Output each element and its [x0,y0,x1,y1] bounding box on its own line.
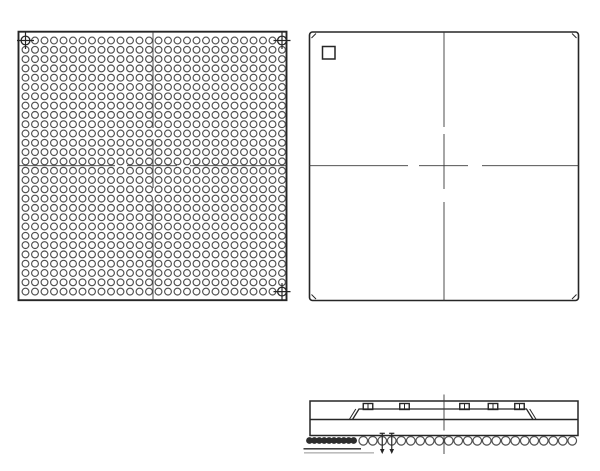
solder-ball [32,149,39,156]
solder-ball [260,260,267,267]
solder-ball [269,186,276,193]
solder-ball [241,37,248,44]
solder-ball [60,214,67,221]
solder-ball [155,112,162,119]
solder-ball [60,232,67,239]
solder-ball [51,260,58,267]
solder-ball [98,232,105,239]
solder-ball [241,288,248,295]
solder-ball [146,195,153,202]
solder-ball [174,130,181,137]
solder-ball [117,102,124,109]
solder-ball [127,37,134,44]
solder-ball [32,130,39,137]
solder-ball [241,242,248,249]
solder-ball [51,232,58,239]
solder-ball [193,158,200,165]
solder-ball [222,260,229,267]
solder-ball [22,84,29,91]
solder-ball [70,46,77,53]
solder-ball [165,130,172,137]
solder-ball [260,177,267,184]
solder-ball [250,56,257,63]
solder-ball [184,93,191,100]
solder-ball [146,214,153,221]
solder-ball [231,130,238,137]
solder-ball [279,167,286,174]
solder-ball [260,74,267,81]
solder-ball [184,279,191,286]
solder-ball [70,242,77,249]
solder-ball [279,139,286,146]
solder-ball [32,223,39,230]
solder-ball [279,214,286,221]
solder-ball [260,186,267,193]
solder-ball [89,251,96,258]
solder-ball [98,251,105,258]
solder-ball [231,195,238,202]
solder-ball [32,214,39,221]
solder-ball [89,205,96,212]
solder-ball [127,102,134,109]
solder-ball [108,74,115,81]
solder-ball [165,112,172,119]
solder-ball [174,167,181,174]
solder-ball [260,149,267,156]
solder-ball [241,251,248,258]
solder-ball [108,288,115,295]
solder-ball [184,130,191,137]
solder-ball [79,56,86,63]
solder-ball [155,195,162,202]
solder-ball [22,279,29,286]
solder-ball [41,167,48,174]
solder-ball [231,279,238,286]
solder-ball [41,242,48,249]
solder-ball [231,288,238,295]
solder-ball [250,93,257,100]
solder-ball [136,102,143,109]
solder-ball [108,56,115,63]
solder-ball [146,279,153,286]
solder-ball [165,195,172,202]
solder-ball [222,288,229,295]
solder-ball [146,260,153,267]
solder-ball [146,242,153,249]
solder-ball [241,139,248,146]
solder-ball [203,270,210,277]
solder-ball [32,112,39,119]
solder-ball [231,251,238,258]
solder-ball [79,223,86,230]
solder-ball [174,279,181,286]
solder-ball [136,195,143,202]
solder-ball [32,139,39,146]
solder-ball [260,56,267,63]
solder-ball [136,130,143,137]
solder-ball-side [549,437,558,446]
solder-ball [51,186,58,193]
solder-ball [60,260,67,267]
solder-ball [174,223,181,230]
solder-ball [98,205,105,212]
solder-ball [155,65,162,72]
solder-ball [231,270,238,277]
solder-ball [269,158,276,165]
solder-ball [98,93,105,100]
solder-ball [136,158,143,165]
solder-ball [146,46,153,53]
solder-ball [117,186,124,193]
solder-ball [241,158,248,165]
solder-ball [136,84,143,91]
solder-ball [70,139,77,146]
solder-ball [222,223,229,230]
solder-ball [41,93,48,100]
lid-edge-line [530,409,537,420]
solder-ball [212,232,219,239]
solder-ball [70,195,77,202]
solder-ball-side [482,437,491,446]
solder-ball [174,102,181,109]
solder-ball [89,232,96,239]
solder-ball [193,177,200,184]
solder-ball [98,214,105,221]
solder-ball [60,205,67,212]
solder-ball [70,251,77,258]
solder-ball [89,130,96,137]
solder-ball [231,37,238,44]
solder-ball [60,149,67,156]
solder-ball [203,223,210,230]
solder-ball [41,279,48,286]
solder-ball [241,112,248,119]
solder-ball [184,205,191,212]
solder-ball [127,130,134,137]
solder-ball [174,205,181,212]
solder-ball [127,121,134,128]
solder-ball [60,158,67,165]
solder-ball [146,93,153,100]
solder-ball [184,37,191,44]
corner-chamfer-tick [572,295,577,300]
solder-ball [241,93,248,100]
solder-ball [117,270,124,277]
solder-ball [222,186,229,193]
solder-ball [22,177,29,184]
solder-ball [79,74,86,81]
solder-ball [212,195,219,202]
solder-ball [212,186,219,193]
solder-ball [279,56,286,63]
solder-ball [269,112,276,119]
solder-ball [146,56,153,63]
solder-ball [22,251,29,258]
solder-ball [89,270,96,277]
solder-ball [89,112,96,119]
solder-ball [165,121,172,128]
solder-ball [184,46,191,53]
solder-ball [117,288,124,295]
solder-ball [98,223,105,230]
solder-ball [60,177,67,184]
solder-ball [127,195,134,202]
solder-ball [174,112,181,119]
solder-ball [184,112,191,119]
solder-ball [250,251,257,258]
solder-ball [89,149,96,156]
solder-ball [203,177,210,184]
solder-ball [98,195,105,202]
solder-ball [60,251,67,258]
solder-ball [79,139,86,146]
solder-ball [108,270,115,277]
solder-ball [250,279,257,286]
solder-ball [212,260,219,267]
solder-ball [60,186,67,193]
solder-ball [79,158,86,165]
solder-ball [127,186,134,193]
solder-ball-side [530,437,539,446]
solder-ball [136,56,143,63]
solder-ball [136,232,143,239]
solder-ball [203,56,210,63]
solder-ball [269,195,276,202]
solder-ball [184,195,191,202]
solder-ball [212,37,219,44]
solder-ball [279,186,286,193]
solder-ball [212,102,219,109]
solder-ball [184,56,191,63]
solder-ball [51,270,58,277]
solder-ball [193,149,200,156]
solder-ball [212,270,219,277]
solder-ball [165,167,172,174]
solder-ball [32,65,39,72]
solder-ball [70,214,77,221]
solder-ball [212,158,219,165]
solder-ball [155,74,162,81]
solder-ball [136,214,143,221]
solder-ball [41,186,48,193]
solder-ball [184,270,191,277]
solder-ball [165,74,172,81]
solder-ball [260,251,267,258]
solder-ball [108,177,115,184]
solder-ball [146,102,153,109]
solder-ball [231,46,238,53]
solder-ball [184,121,191,128]
solder-ball [136,167,143,174]
solder-ball [60,102,67,109]
solder-ball [250,223,257,230]
solder-ball [51,93,58,100]
solder-ball-side [473,437,482,446]
solder-ball [41,56,48,63]
datum-arrow-head [389,449,394,454]
solder-ball [89,37,96,44]
solder-ball [89,102,96,109]
solder-ball [212,130,219,137]
solder-ball [250,74,257,81]
solder-ball [117,74,124,81]
solder-ball [32,74,39,81]
solder-ball [269,102,276,109]
solder-ball [32,186,39,193]
solder-ball [60,288,67,295]
solder-ball [32,205,39,212]
solder-ball [79,279,86,286]
solder-ball [269,214,276,221]
solder-ball [279,242,286,249]
solder-ball [203,74,210,81]
solder-ball [117,195,124,202]
solder-ball-side [463,437,472,446]
solder-ball [203,112,210,119]
solder-ball-side [444,437,453,446]
solder-ball [70,205,77,212]
solder-ball [269,205,276,212]
corner-chamfer-tick [572,34,577,39]
solder-ball [269,251,276,258]
solder-ball [155,149,162,156]
solder-ball [60,65,67,72]
solder-ball [222,195,229,202]
solder-ball [117,93,124,100]
solder-ball [203,139,210,146]
solder-ball [269,223,276,230]
solder-ball [108,139,115,146]
solder-ball [184,102,191,109]
solder-ball [241,177,248,184]
solder-ball [241,270,248,277]
solder-ball [136,37,143,44]
solder-ball [260,37,267,44]
solder-ball [260,195,267,202]
solder-ball [22,121,29,128]
solder-ball [155,205,162,212]
solder-ball [70,288,77,295]
solder-ball [193,84,200,91]
solder-ball [174,46,181,53]
solder-ball [146,121,153,128]
solder-ball [146,149,153,156]
solder-ball [203,84,210,91]
solder-ball [79,242,86,249]
solder-ball [269,65,276,72]
solder-ball [89,288,96,295]
solder-ball [70,56,77,63]
solder-ball [269,177,276,184]
solder-ball [165,279,172,286]
solder-ball [184,251,191,258]
solder-ball [269,139,276,146]
solder-ball [279,74,286,81]
solder-ball [165,288,172,295]
solder-ball [32,260,39,267]
solder-ball [203,195,210,202]
solder-ball [279,158,286,165]
solder-ball [212,279,219,286]
solder-ball [60,46,67,53]
solder-ball [108,84,115,91]
solder-ball [193,232,200,239]
solder-ball [174,65,181,72]
solder-ball [51,167,58,174]
solder-ball [203,167,210,174]
solder-ball [260,270,267,277]
solder-ball [174,242,181,249]
solder-ball [193,74,200,81]
solder-ball [212,288,219,295]
solder-ball [89,139,96,146]
solder-ball [269,84,276,91]
solder-ball [193,260,200,267]
solder-ball [250,260,257,267]
solder-ball [222,158,229,165]
solder-ball [184,260,191,267]
solder-ball [279,177,286,184]
solder-ball [203,205,210,212]
solder-ball [155,214,162,221]
solder-ball [250,186,257,193]
solder-ball [136,65,143,72]
solder-ball [79,121,86,128]
solder-ball [51,56,58,63]
solder-ball [117,158,124,165]
solder-ball [250,84,257,91]
solder-ball [165,65,172,72]
solder-ball [60,93,67,100]
solder-ball [117,46,124,53]
solder-ball [41,74,48,81]
solder-ball [165,260,172,267]
solder-ball [117,260,124,267]
solder-ball [79,167,86,174]
solder-ball [212,214,219,221]
solder-ball [146,205,153,212]
solder-ball [89,186,96,193]
solder-ball [117,112,124,119]
solder-ball [51,195,58,202]
solder-ball [70,167,77,174]
solder-ball [108,205,115,212]
solder-ball [279,149,286,156]
solder-ball [222,74,229,81]
solder-ball [174,149,181,156]
solder-ball [260,158,267,165]
solder-ball [108,121,115,128]
solder-ball [193,195,200,202]
solder-ball [22,56,29,63]
solder-ball [222,251,229,258]
solder-ball [279,93,286,100]
solder-ball [241,186,248,193]
solder-ball [79,205,86,212]
solder-ball [146,232,153,239]
solder-ball [108,102,115,109]
solder-ball [136,251,143,258]
solder-ball [32,56,39,63]
solder-ball [41,205,48,212]
solder-ball [108,232,115,239]
solder-ball [127,56,134,63]
solder-ball [32,195,39,202]
solder-ball [79,84,86,91]
solder-ball [165,102,172,109]
solder-ball [279,84,286,91]
solder-ball [70,177,77,184]
